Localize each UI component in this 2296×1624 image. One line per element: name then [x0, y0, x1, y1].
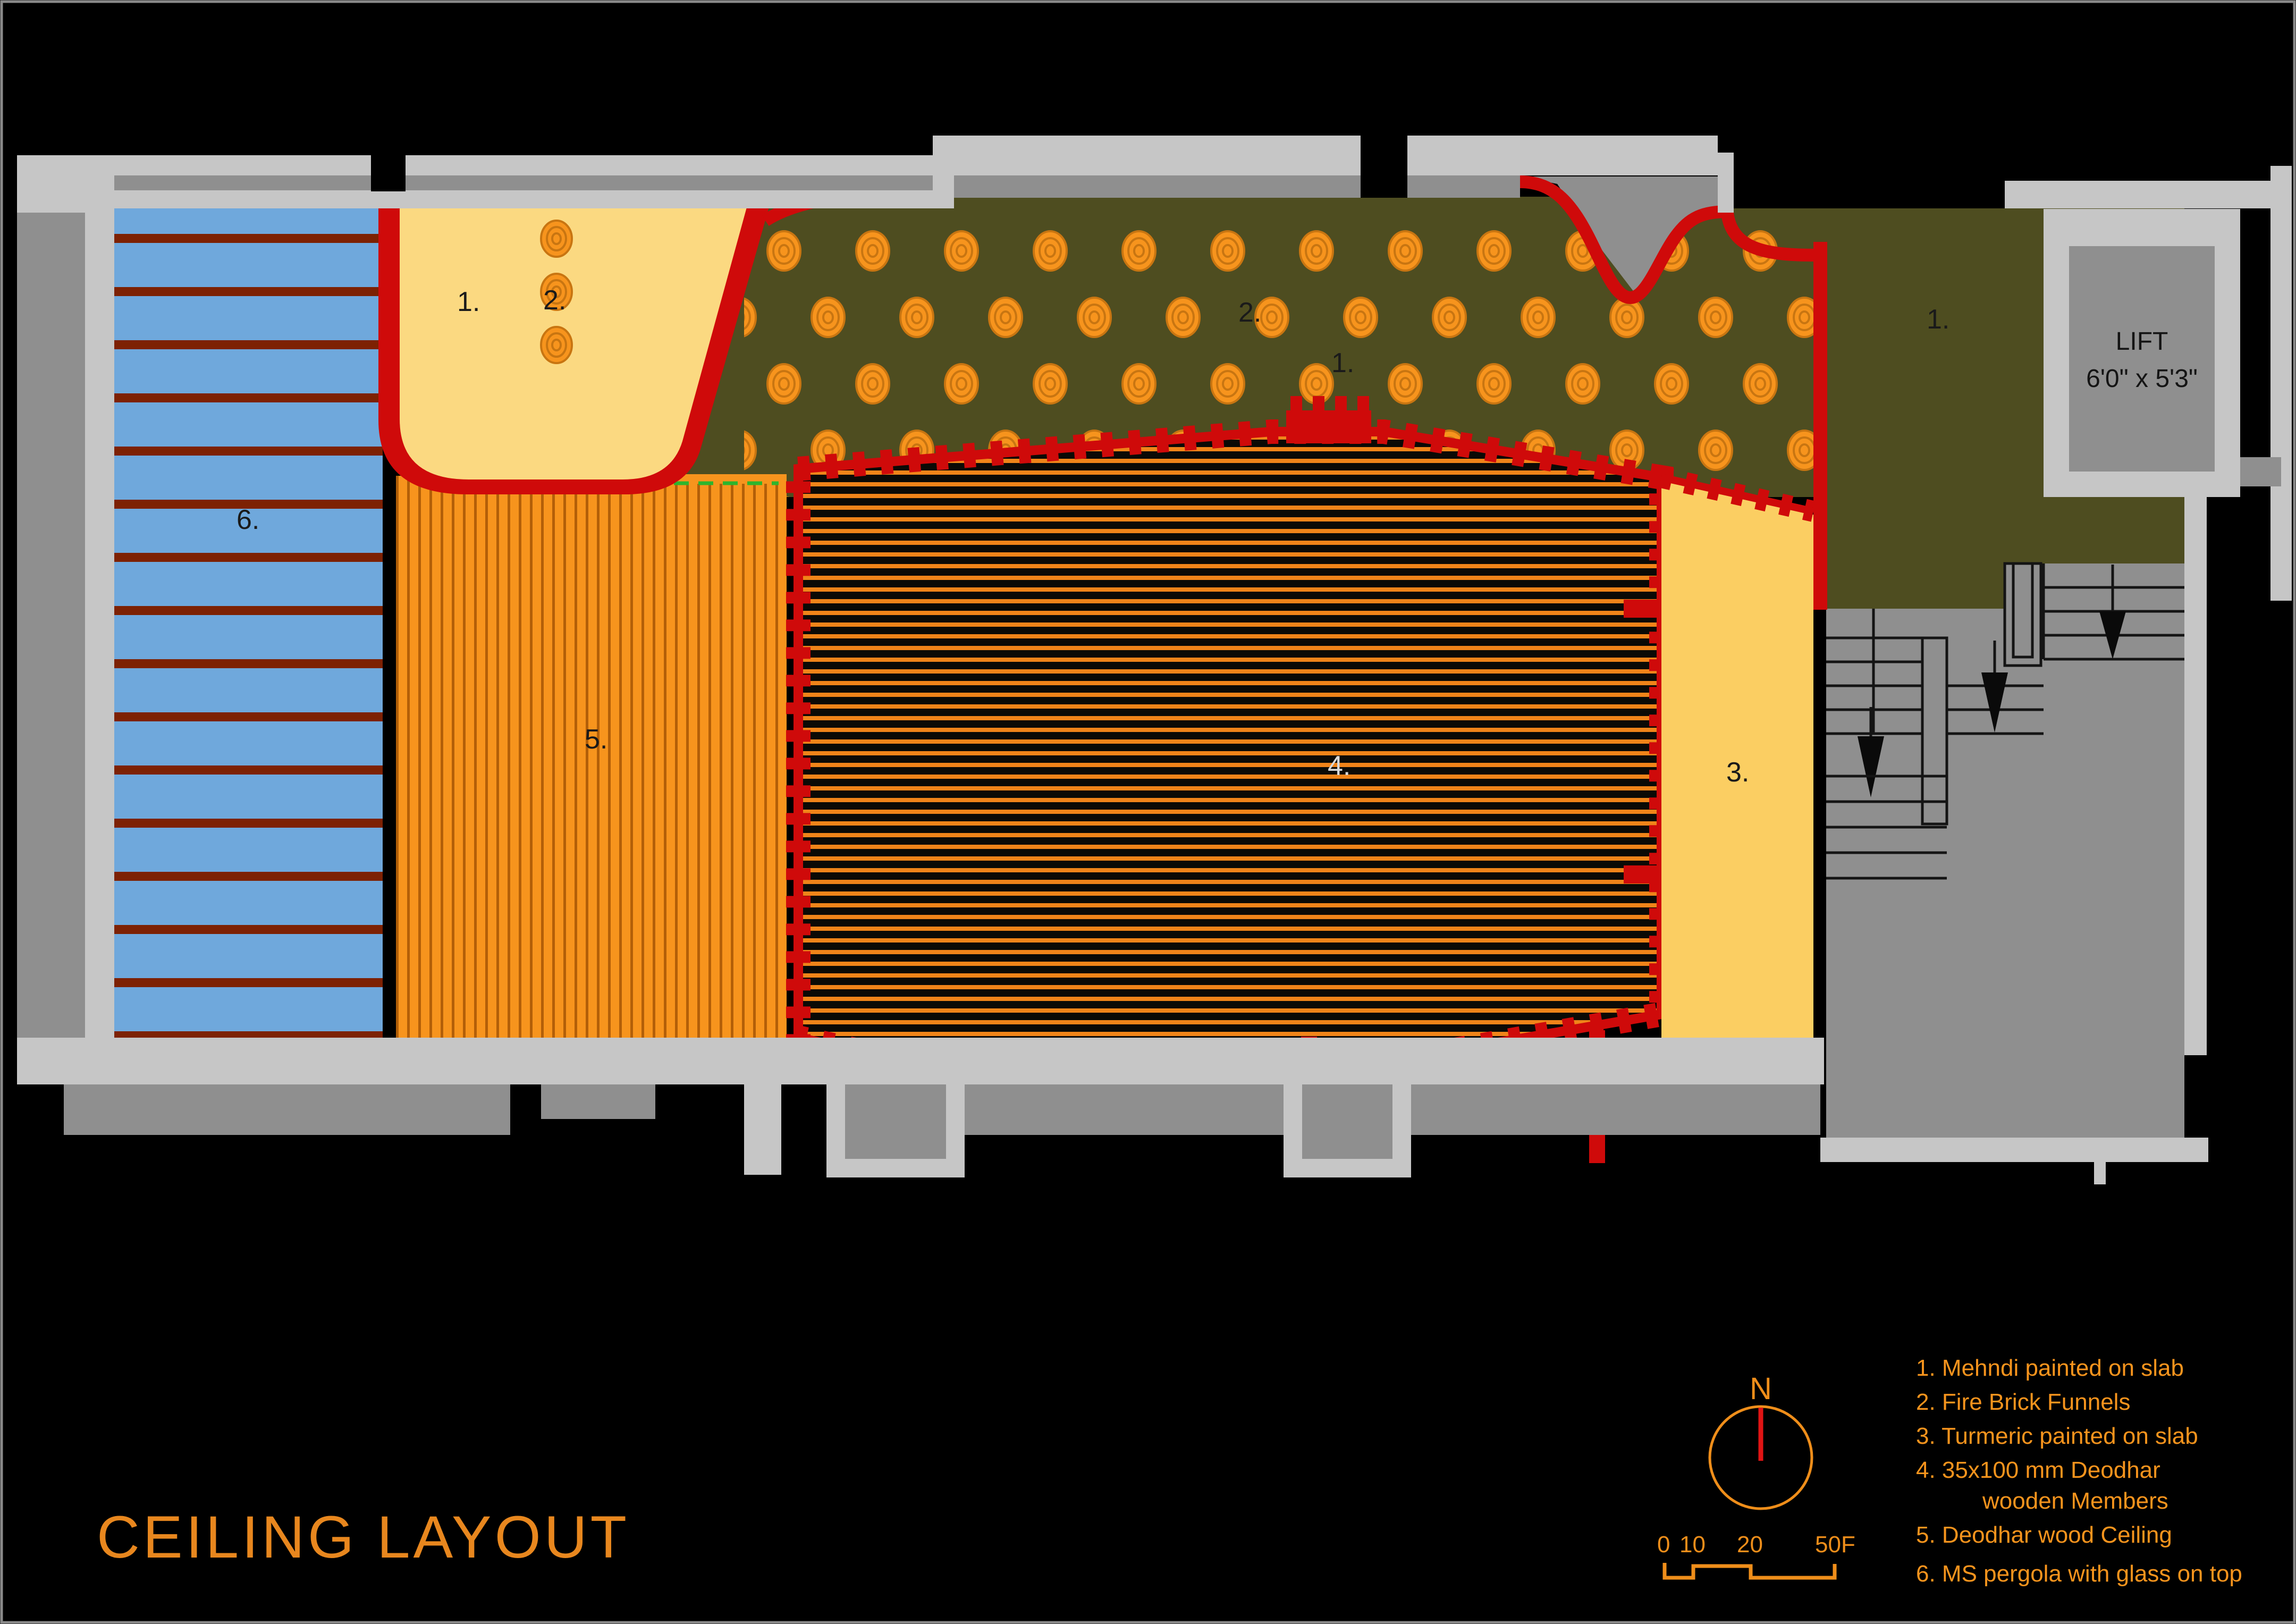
wall-opening [371, 155, 406, 191]
region-ms-pergola [114, 200, 383, 1038]
scale-tick-10: 10 [1679, 1532, 1706, 1558]
label-region-2-cream: 2. [543, 285, 566, 316]
wall-opening [1361, 136, 1407, 198]
label-region-6: 6. [237, 504, 259, 535]
wall-stub [1718, 153, 1734, 213]
label-region-1-right: 1. [1927, 304, 1949, 335]
legend-item-6: 6. MS pergola with glass on top [1916, 1561, 2242, 1587]
sheet-title: CEILING LAYOUT [97, 1504, 630, 1570]
legend-item-5: 5. Deodhar wood Ceiling [1916, 1522, 2172, 1548]
ceiling-layout-sheet: LIFT 6'0" x 5'3" 6. 1. 2. 2. 1. 1. 5. 4.… [0, 0, 2296, 1624]
scale-tick-20: 20 [1737, 1532, 1763, 1558]
legend-item-3: 3. Turmeric painted on slab [1916, 1423, 2198, 1449]
scale-tick-50: 50F [1815, 1532, 1855, 1558]
label-region-1-cream: 1. [457, 287, 480, 317]
label-region-5: 5. [585, 724, 607, 755]
floor-plan-drawing: LIFT 6'0" x 5'3" 6. 1. 2. 2. 1. 1. 5. 4.… [0, 0, 2296, 1624]
legend-item-1: 1. Mehndi painted on slab [1916, 1355, 2184, 1381]
label-region-1-olive: 1. [1331, 348, 1354, 378]
lift-room: LIFT 6'0" x 5'3" [2044, 209, 2240, 497]
region-deodhar-wood-ceiling [396, 474, 787, 1038]
scale-tick-0: 0 [1657, 1532, 1670, 1558]
lift-label: LIFT [2116, 327, 2168, 356]
legend-item-2: 2. Fire Brick Funnels [1916, 1389, 2130, 1415]
label-region-4: 4. [1328, 751, 1350, 781]
label-region-2-olive: 2. [1238, 297, 1261, 328]
label-region-3: 3. [1726, 757, 1749, 788]
north-label: N [1750, 1371, 1772, 1406]
lift-size-label: 6'0" x 5'3" [2086, 365, 2198, 393]
legend-item-4: 4. 35x100 mm Deodhar [1916, 1457, 2160, 1483]
staircase [1826, 563, 2184, 1138]
legend-item-4-line2: wooden Members [1982, 1488, 2168, 1514]
